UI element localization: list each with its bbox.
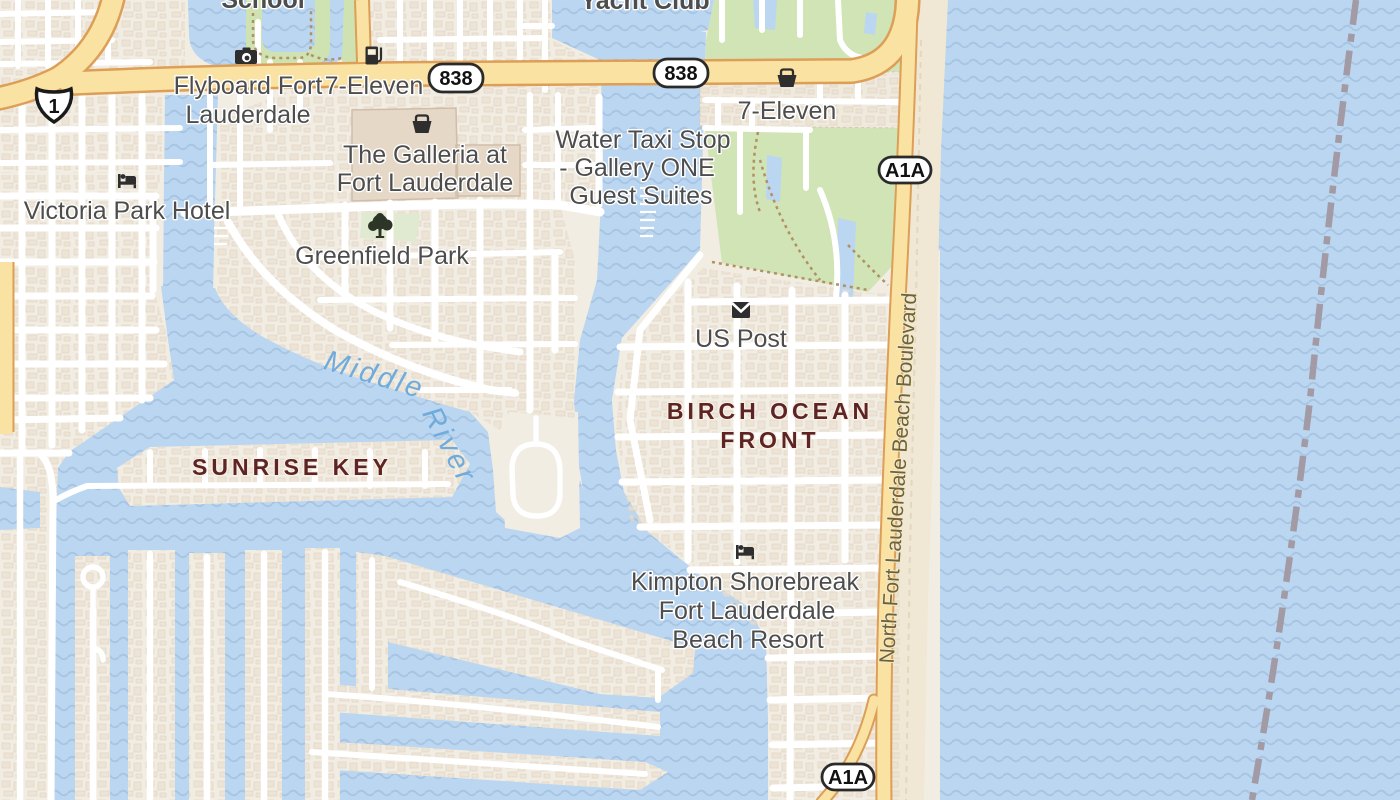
svg-text:A1A: A1A (885, 160, 925, 182)
svg-text:The Galleria at: The Galleria at (343, 141, 507, 169)
svg-text:7-Eleven: 7-Eleven (325, 72, 424, 100)
svg-text:Flyboard Fort: Flyboard Fort (174, 72, 323, 100)
svg-text:School: School (221, 0, 304, 14)
svg-text:BIRCH OCEAN: BIRCH OCEAN (667, 398, 873, 424)
svg-text:SUNRISE KEY: SUNRISE KEY (192, 454, 392, 480)
svg-text:Fort Lauderdale: Fort Lauderdale (659, 597, 836, 625)
svg-text:Lauderdale: Lauderdale (185, 101, 310, 129)
svg-text:FRONT: FRONT (720, 427, 819, 453)
svg-text:Water Taxi Stop: Water Taxi Stop (555, 126, 730, 154)
svg-text:Guest Suites: Guest Suites (569, 182, 712, 210)
svg-text:- Gallery ONE: - Gallery ONE (559, 154, 715, 182)
svg-text:US Post: US Post (695, 325, 787, 353)
svg-text:838: 838 (664, 63, 697, 85)
svg-text:Beach Resort: Beach Resort (672, 626, 824, 654)
svg-text:1: 1 (48, 96, 59, 118)
svg-text:Fort Lauderdale: Fort Lauderdale (337, 169, 514, 197)
svg-text:A1A: A1A (828, 767, 868, 789)
svg-text:7-Eleven: 7-Eleven (738, 97, 837, 125)
svg-text:838: 838 (439, 68, 472, 90)
svg-text:Victoria Park Hotel: Victoria Park Hotel (24, 197, 231, 225)
svg-text:Yacht Club: Yacht Club (580, 0, 709, 15)
svg-text:Greenfield Park: Greenfield Park (295, 242, 469, 270)
svg-text:Kimpton Shorebreak: Kimpton Shorebreak (631, 568, 859, 596)
